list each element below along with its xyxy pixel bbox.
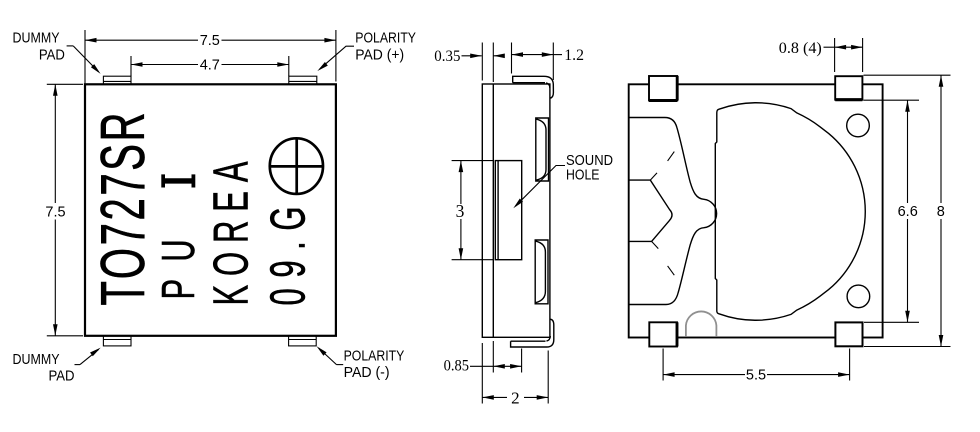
svg-text:0.8 (4): 0.8 (4) — [779, 40, 822, 57]
svg-text:PAD (+): PAD (+) — [355, 46, 404, 63]
svg-text:7.5: 7.5 — [200, 33, 220, 49]
svg-text:6.6: 6.6 — [898, 204, 918, 220]
svg-text:U: U — [154, 239, 204, 261]
svg-text:7.5: 7.5 — [45, 204, 65, 220]
svg-text:1.2: 1.2 — [564, 47, 584, 64]
svg-text:5.5: 5.5 — [746, 368, 766, 384]
svg-text:POLARITY: POLARITY — [355, 29, 416, 46]
svg-text:PAD: PAD — [49, 367, 75, 384]
svg-text:POLARITY: POLARITY — [344, 347, 405, 364]
svg-text:PAD (-): PAD (-) — [344, 364, 390, 381]
svg-text:0.85: 0.85 — [444, 357, 470, 374]
svg-text:P: P — [154, 279, 204, 300]
svg-text:8: 8 — [937, 204, 945, 220]
svg-text:DUMMY: DUMMY — [13, 351, 60, 368]
svg-text:HOLE: HOLE — [566, 166, 600, 183]
svg-text:2: 2 — [511, 388, 520, 407]
svg-text:DUMMY: DUMMY — [13, 29, 60, 46]
svg-text:4.7: 4.7 — [200, 58, 220, 74]
svg-text:0.35: 0.35 — [434, 48, 460, 65]
svg-text:PAD: PAD — [39, 46, 65, 63]
svg-text:3: 3 — [456, 201, 465, 221]
